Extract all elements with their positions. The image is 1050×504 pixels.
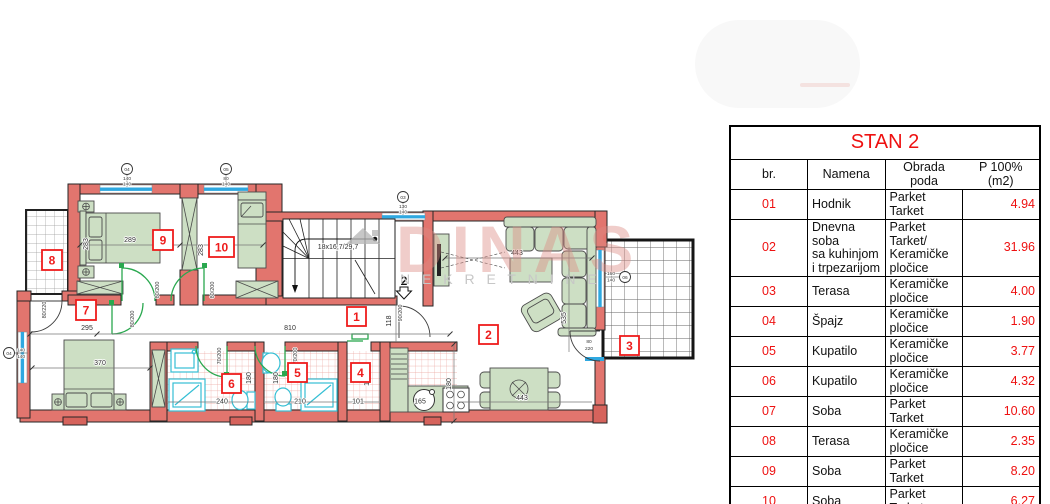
dim-180liv: 180 bbox=[446, 378, 453, 390]
col-header-namena: Namena bbox=[808, 160, 886, 190]
table-row: 07 Soba Parket Tarket 10.60 bbox=[730, 397, 1040, 427]
table-row: 02 Dnevna soba sa kuhinjom i trpezarijom… bbox=[730, 220, 1040, 277]
stairs-label: 18x16,7/29,7 bbox=[318, 244, 359, 251]
dim-443b: 443 bbox=[516, 395, 528, 402]
table-row: 03 Terasa Keramičke pločice 4.00 bbox=[730, 277, 1040, 307]
terrace3-door-label-a: 80 bbox=[586, 339, 592, 345]
dim-295: 295 bbox=[81, 325, 93, 332]
marker-05-top: 05 80 140 bbox=[221, 164, 232, 188]
svg-text:04: 04 bbox=[124, 167, 130, 173]
room-label-8: 8 bbox=[42, 250, 62, 270]
svg-text:140: 140 bbox=[17, 354, 25, 360]
room-label-2: 2 bbox=[479, 325, 498, 344]
svg-text:04: 04 bbox=[6, 351, 12, 357]
floor-plan-sheet: 18x16,7/29,7 bbox=[0, 0, 1050, 504]
room-label-5: 5 bbox=[288, 363, 307, 382]
svg-text:3: 3 bbox=[626, 339, 633, 353]
watermark-sub: N E K R E T N I N E bbox=[400, 271, 601, 287]
room-label-10: 10 bbox=[209, 237, 234, 257]
dim-240: 240 bbox=[216, 399, 228, 406]
table-title: STAN 2 bbox=[730, 126, 1040, 160]
dim-101: 101 bbox=[352, 399, 364, 406]
svg-text:2: 2 bbox=[485, 328, 492, 342]
bath6-door-label: 70/200 bbox=[217, 348, 223, 365]
svg-text:7: 7 bbox=[83, 304, 90, 318]
svg-text:130: 130 bbox=[399, 204, 407, 210]
dim-535: 535 bbox=[561, 312, 568, 324]
apartment-table: STAN 2 br. Namena Obrada poda P 100% (m2… bbox=[729, 125, 1041, 504]
table-row: 08 Terasa Keramičke pločice 2.35 bbox=[730, 427, 1040, 457]
table-row: 10 Soba Parket Tarket 6.27 bbox=[730, 487, 1040, 504]
room-label-3: 3 bbox=[620, 336, 639, 355]
col-header-br: br. bbox=[730, 160, 808, 190]
svg-text:140: 140 bbox=[17, 348, 25, 354]
room10-door-label: 80/200 bbox=[210, 282, 216, 299]
room-label-6: 6 bbox=[222, 374, 241, 393]
room9-door-label: 80/200 bbox=[155, 282, 161, 299]
dim-283b: 283 bbox=[198, 244, 205, 256]
table-row: 06 Kupatilo Keramičke pločice 4.32 bbox=[730, 367, 1040, 397]
svg-text:5: 5 bbox=[294, 366, 301, 380]
dim-180b6: 180 bbox=[246, 372, 253, 384]
terrace8-door-label: 80/220 bbox=[42, 302, 48, 319]
table-row: 01 Hodnik Parket Tarket 4.94 bbox=[730, 190, 1040, 220]
room-label-4: 4 bbox=[351, 363, 370, 382]
wardrobe-7-6 bbox=[152, 350, 165, 407]
dim-165: 165 bbox=[414, 399, 426, 406]
staircase: 18x16,7/29,7 bbox=[283, 219, 395, 298]
table-row: 05 Kupatilo Keramičke pločice 3.77 bbox=[730, 337, 1040, 367]
svg-text:140: 140 bbox=[123, 182, 131, 188]
svg-text:1: 1 bbox=[353, 310, 360, 324]
table-row: 09 Soba Parket Tarket 8.20 bbox=[730, 457, 1040, 487]
room-label-9: 9 bbox=[153, 230, 173, 250]
svg-text:05: 05 bbox=[223, 167, 229, 173]
svg-text:10: 10 bbox=[215, 241, 229, 255]
svg-text:03: 03 bbox=[400, 195, 406, 201]
svg-text:80: 80 bbox=[223, 176, 229, 182]
dim-118: 118 bbox=[386, 315, 393, 326]
dim-283a: 283 bbox=[83, 238, 90, 250]
wardrobe-9-10 bbox=[182, 198, 197, 270]
svg-text:8: 8 bbox=[49, 254, 56, 268]
terrace3-door-label-b: 220 bbox=[585, 346, 593, 352]
room9-door bbox=[119, 263, 155, 301]
room7-door-label: 80/200 bbox=[130, 311, 136, 328]
room-label-1: 1 bbox=[347, 307, 366, 326]
col-header-obrada: Obrada poda bbox=[885, 160, 963, 190]
svg-text:140: 140 bbox=[123, 176, 131, 182]
room-label-7: 7 bbox=[76, 300, 96, 320]
dim-370: 370 bbox=[94, 360, 106, 367]
svg-text:9: 9 bbox=[160, 234, 167, 248]
entrance-arrow-icon bbox=[397, 287, 412, 299]
armchair bbox=[519, 291, 563, 334]
entry-door-label: 90/200 bbox=[398, 305, 404, 322]
svg-text:4: 4 bbox=[357, 366, 364, 380]
svg-text:140: 140 bbox=[222, 182, 230, 188]
col-header-p: P 100% (m2) bbox=[963, 160, 1041, 190]
dim-180b5: 180 bbox=[273, 372, 280, 384]
room7-bed bbox=[52, 340, 126, 410]
svg-text:6: 6 bbox=[228, 377, 235, 391]
pantry-slide-door bbox=[347, 334, 368, 341]
dim-289: 289 bbox=[124, 237, 136, 244]
marker-04-top: 04 140 140 bbox=[122, 164, 133, 188]
dining-set bbox=[480, 368, 560, 410]
dim-210: 210 bbox=[294, 399, 306, 406]
bath5-door-label: 70/200 bbox=[293, 348, 299, 365]
dim-810: 810 bbox=[284, 325, 296, 332]
table-row: 04 Špajz Keramičke pločice 1.90 bbox=[730, 307, 1040, 337]
